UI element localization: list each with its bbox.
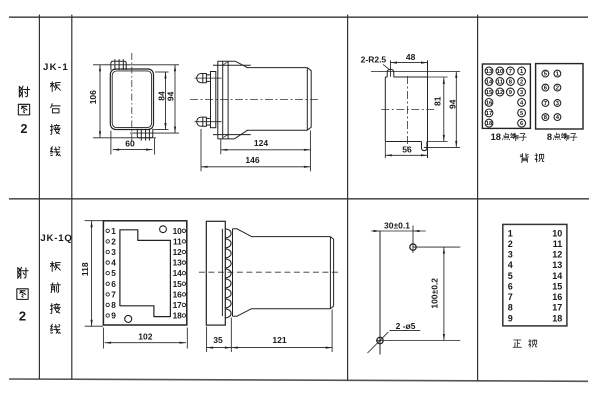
svg-text:6: 6 (508, 281, 513, 291)
svg-text:10: 10 (497, 69, 503, 75)
svg-text:60: 60 (125, 139, 135, 149)
svg-text:2: 2 (556, 86, 559, 92)
svg-text:JK-1Q: JK-1Q (40, 233, 72, 244)
svg-text:7: 7 (509, 69, 512, 75)
svg-text:15: 15 (486, 90, 493, 96)
svg-text:3: 3 (508, 250, 513, 260)
svg-text:18: 18 (486, 121, 493, 127)
svg-text:56: 56 (402, 145, 412, 155)
svg-text:13: 13 (486, 69, 493, 75)
svg-text:7: 7 (508, 292, 513, 302)
svg-text:9: 9 (111, 311, 116, 321)
svg-text:14: 14 (552, 271, 562, 281)
svg-text:12: 12 (173, 247, 183, 257)
svg-text:8: 8 (111, 300, 116, 310)
svg-text:2: 2 (520, 80, 523, 86)
svg-text:124: 124 (254, 138, 268, 148)
svg-text:7: 7 (111, 289, 116, 299)
svg-text:100±0.2: 100±0.2 (429, 278, 439, 309)
svg-text:11: 11 (553, 239, 563, 249)
svg-text:5: 5 (111, 268, 116, 278)
svg-text:2: 2 (508, 239, 513, 249)
svg-text:6: 6 (111, 279, 116, 289)
svg-text:JK-1: JK-1 (43, 62, 69, 73)
svg-text:2: 2 (19, 308, 26, 323)
svg-text:14: 14 (486, 80, 493, 86)
svg-text:12: 12 (552, 250, 562, 260)
svg-text:17: 17 (173, 300, 183, 310)
svg-text:2: 2 (111, 236, 116, 246)
svg-text:10: 10 (173, 226, 183, 236)
svg-text:9: 9 (508, 313, 513, 323)
svg-text:94: 94 (447, 99, 457, 109)
svg-text:5: 5 (508, 271, 513, 281)
svg-text:1: 1 (111, 226, 116, 236)
svg-text:18: 18 (552, 313, 562, 323)
svg-text:106: 106 (88, 90, 98, 104)
svg-text:2 -ø5: 2 -ø5 (396, 321, 416, 331)
svg-text:121: 121 (272, 335, 286, 345)
svg-text:12: 12 (497, 90, 503, 96)
svg-text:2-R2.5: 2-R2.5 (361, 54, 387, 64)
svg-text:3: 3 (111, 247, 116, 257)
svg-text:4: 4 (111, 258, 116, 268)
svg-text:35: 35 (213, 335, 223, 345)
svg-text:8: 8 (508, 303, 513, 313)
svg-text:81: 81 (433, 96, 443, 106)
svg-text:17: 17 (552, 303, 562, 313)
svg-text:11: 11 (497, 80, 504, 86)
svg-text:18: 18 (173, 311, 183, 321)
svg-text:94: 94 (166, 91, 176, 101)
svg-text:7: 7 (544, 101, 547, 107)
svg-text:16: 16 (552, 292, 562, 302)
svg-text:15: 15 (552, 281, 562, 291)
svg-text:16: 16 (486, 101, 493, 107)
svg-text:2: 2 (21, 122, 28, 136)
svg-text:10: 10 (552, 228, 562, 238)
svg-text:1: 1 (508, 228, 513, 238)
svg-text:13: 13 (173, 258, 183, 268)
svg-text:14: 14 (173, 268, 183, 278)
svg-text:48: 48 (406, 52, 416, 62)
svg-text:146: 146 (245, 155, 259, 165)
svg-text:16: 16 (173, 289, 183, 299)
svg-text:102: 102 (138, 331, 152, 341)
svg-text:15: 15 (173, 279, 183, 289)
svg-text:18: 18 (491, 132, 501, 142)
svg-text:17: 17 (486, 111, 492, 117)
svg-text:11: 11 (173, 236, 182, 246)
svg-text:30±0.1: 30±0.1 (384, 220, 410, 230)
svg-text:118: 118 (80, 262, 90, 276)
svg-text:13: 13 (552, 260, 562, 270)
svg-text:4: 4 (508, 260, 513, 270)
svg-text:8: 8 (547, 132, 552, 142)
